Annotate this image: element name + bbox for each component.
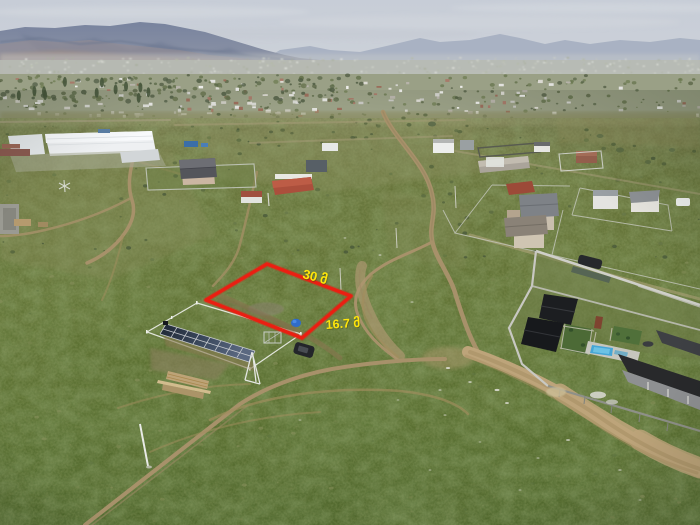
svg-text:16.7 მ: 16.7 მ — [325, 315, 361, 332]
